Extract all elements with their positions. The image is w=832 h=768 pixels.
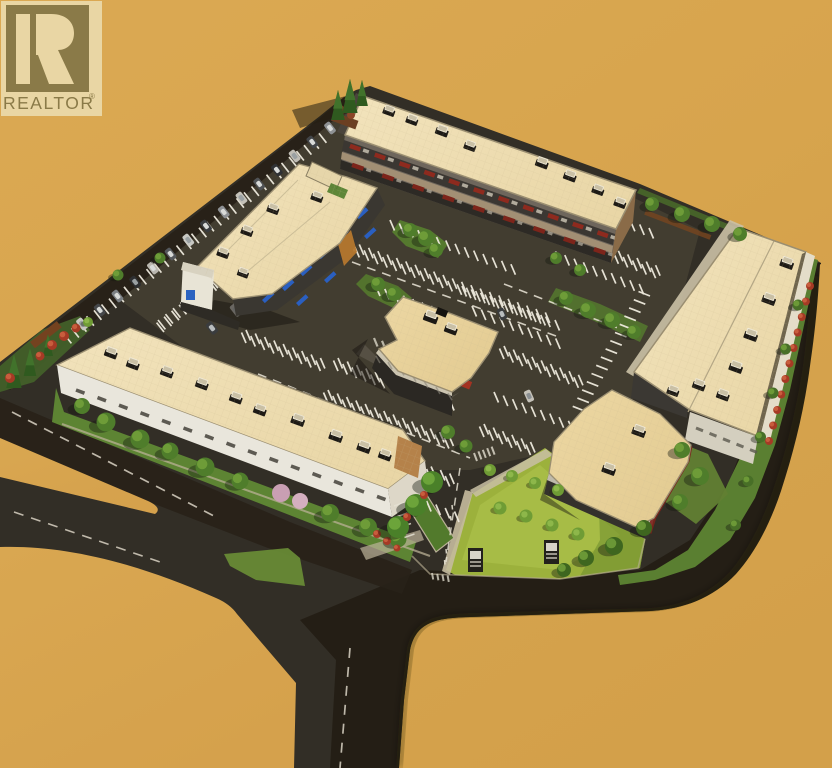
svg-text:REALTOR: REALTOR <box>3 93 95 113</box>
svg-text:®: ® <box>89 92 95 101</box>
